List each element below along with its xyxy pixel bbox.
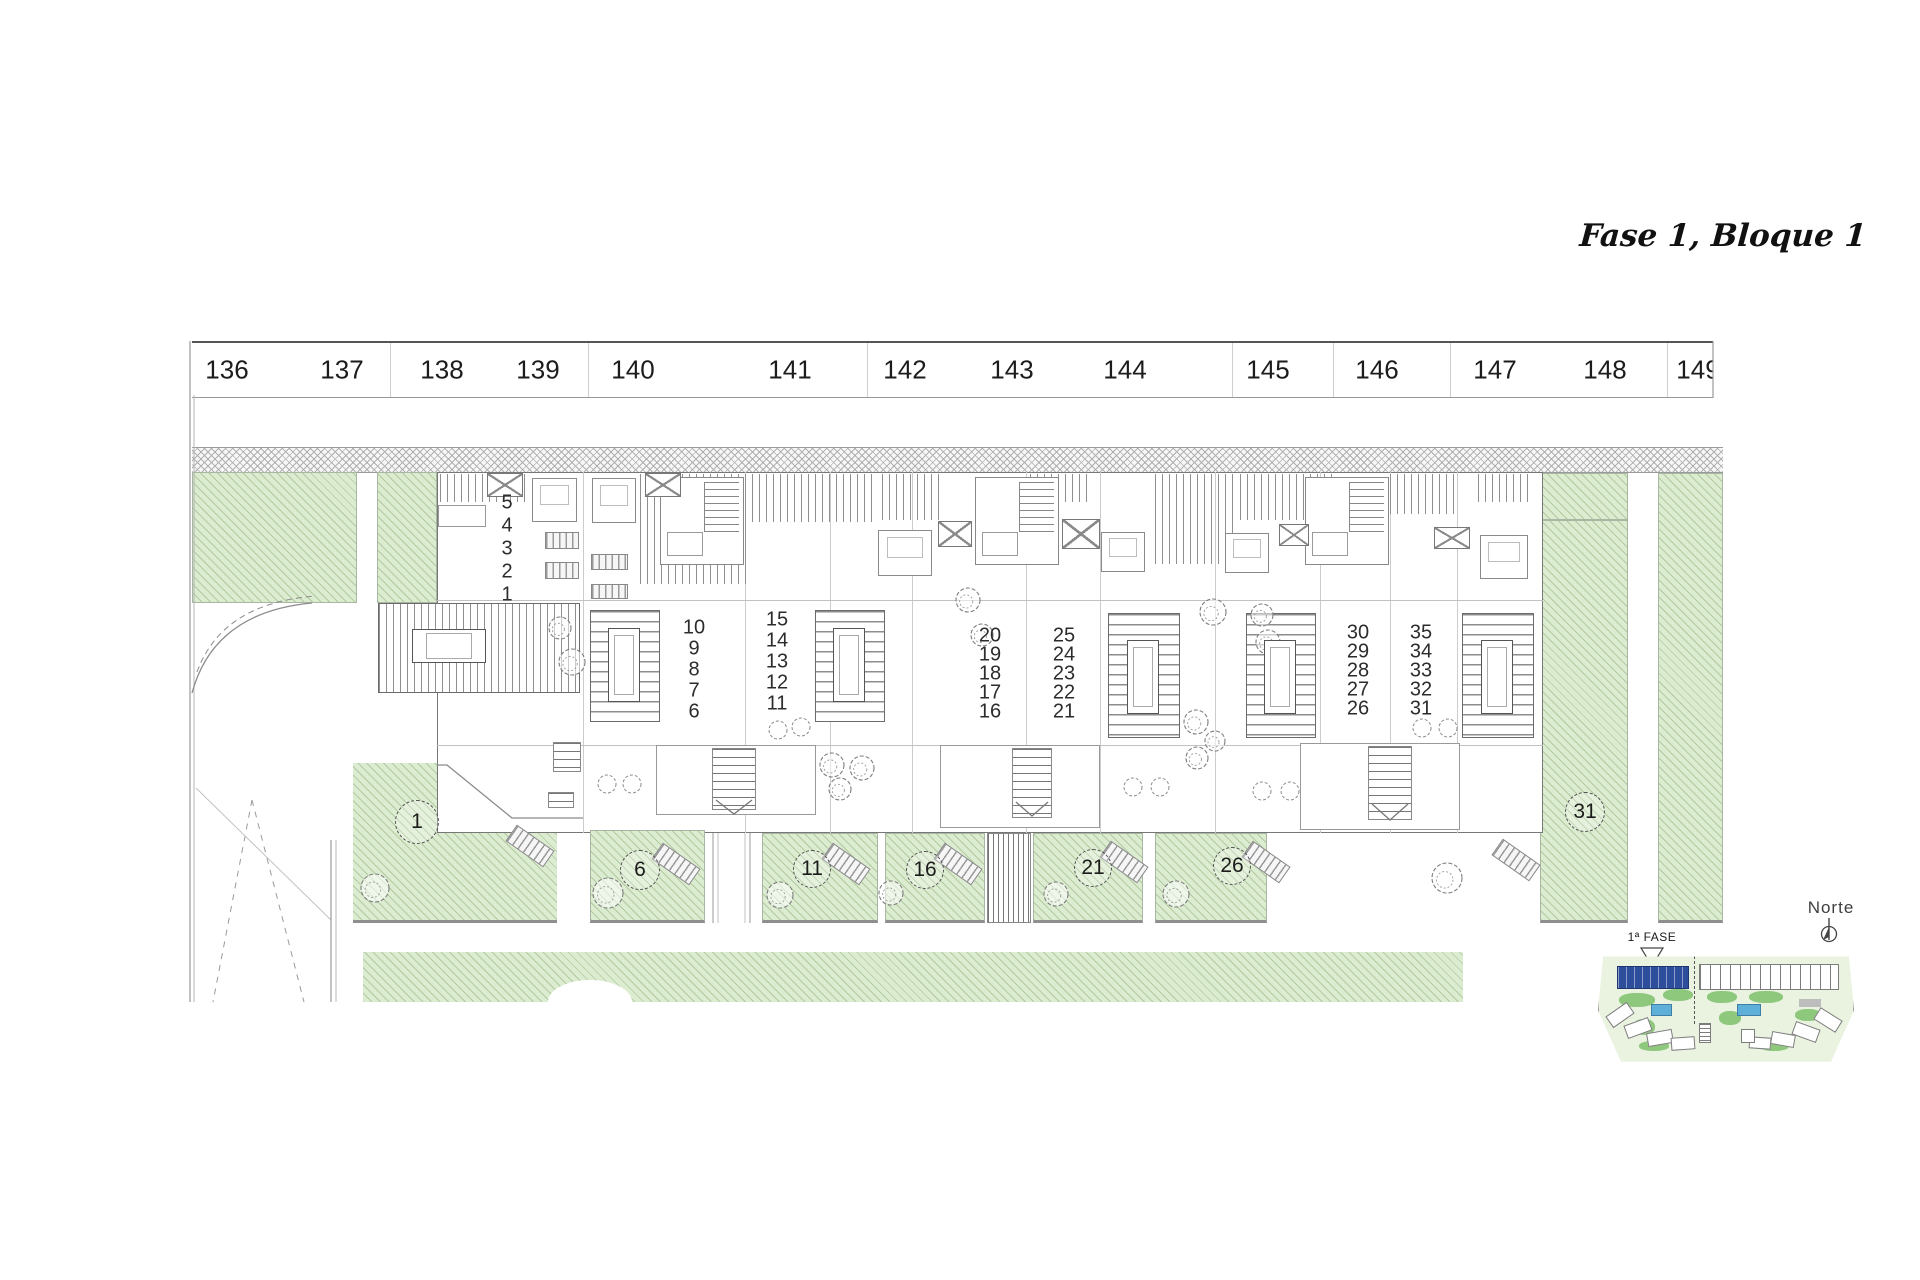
parcel-number: 143	[990, 355, 1033, 386]
ruler-divider	[1450, 343, 1451, 397]
minimap-pool	[1737, 1004, 1761, 1016]
stair-treads	[1349, 482, 1384, 532]
garden-stair	[553, 742, 581, 772]
parcel-number: 148	[1583, 355, 1626, 386]
plot-label: 16	[913, 858, 936, 882]
parcel-number: 144	[1103, 355, 1146, 386]
minimap-building	[1741, 1029, 1755, 1043]
unit-number: 4	[501, 515, 512, 538]
parcel-number: 149	[1676, 355, 1713, 386]
minimap-building	[1671, 1036, 1696, 1051]
unit-number: 16	[979, 701, 1001, 724]
parcel-number-ruler: 1361371381391401411421431441451461471481…	[192, 341, 1713, 398]
unit-number: 10	[683, 617, 705, 640]
unit-number: 31	[1410, 698, 1432, 721]
unit-number: 7	[688, 680, 699, 703]
plot-label: 1	[411, 810, 423, 834]
green-area-left-block	[192, 472, 357, 603]
ruler-divider	[867, 343, 868, 397]
pergola-stripes	[1478, 474, 1534, 502]
tree-icon	[1437, 872, 1454, 889]
pergola-stripes	[882, 474, 940, 520]
plot-label: 21	[1081, 856, 1104, 880]
parcel-number: 138	[420, 355, 463, 386]
parcel-number: 140	[611, 355, 654, 386]
parcel-number: 145	[1246, 355, 1289, 386]
garden-stair	[548, 792, 574, 808]
minimap-solarium	[1799, 999, 1821, 1007]
bed-room	[532, 478, 577, 522]
room-fixture	[667, 532, 703, 556]
walkway-steps	[987, 833, 1031, 923]
pergola-stripes	[752, 474, 876, 522]
ruler-divider	[1333, 343, 1334, 397]
pergola-stripes	[1390, 474, 1460, 514]
fase-label: 1ª FASE	[1612, 930, 1692, 944]
garden-stair	[1012, 748, 1052, 818]
floor-line	[437, 600, 1543, 601]
shaft-x-box	[1279, 524, 1309, 546]
plot-label-circle: 31	[1565, 792, 1605, 832]
minimap-green	[1749, 991, 1783, 1003]
bed-room	[878, 530, 932, 576]
parcel-number: 146	[1355, 355, 1398, 386]
unit-number: 15	[766, 609, 788, 632]
ruler-divider	[390, 343, 391, 397]
parcel-number: 137	[320, 355, 363, 386]
north-arrow-icon	[1822, 918, 1837, 942]
dining-table	[1481, 640, 1513, 714]
sun-lounger	[591, 554, 628, 570]
plot-label: 26	[1220, 854, 1243, 878]
minimap-green	[1663, 989, 1693, 1001]
stair-treads	[704, 482, 739, 532]
plot-label-circle: 6	[620, 850, 660, 890]
garden-plot-31	[1540, 520, 1628, 923]
plot-label-circle: 16	[906, 851, 944, 889]
unit-number: 2	[501, 561, 512, 584]
garden-stair	[1368, 746, 1412, 820]
unit-number: 21	[1053, 701, 1075, 724]
minimap-highlighted-block	[1617, 966, 1689, 989]
tree-icon	[1432, 863, 1462, 893]
hatched-boundary-band	[192, 447, 1723, 473]
sidewalk-bump	[548, 980, 632, 1024]
green-area-left-strip	[377, 472, 437, 603]
unit-number: 9	[688, 638, 699, 661]
north-label: Norte	[1786, 898, 1876, 918]
parcel-number: 147	[1473, 355, 1516, 386]
shaft-x-box	[938, 521, 972, 547]
dining-table	[412, 629, 486, 663]
unit-number: 11	[767, 693, 788, 716]
sun-lounger	[545, 532, 579, 549]
bed-room	[1225, 533, 1269, 573]
ruler-divider	[1667, 343, 1668, 397]
shaft-x-box	[1062, 519, 1100, 549]
minimap-top-row	[1699, 964, 1839, 990]
dining-table	[833, 628, 865, 702]
kitchen-counter	[438, 505, 486, 527]
sun-lounger	[1491, 839, 1540, 882]
unit-number: 13	[766, 651, 788, 674]
minimap-green	[1707, 991, 1737, 1003]
unit-number: 1	[501, 584, 512, 607]
room-fixture	[1312, 532, 1348, 556]
unit-number: 5	[501, 492, 512, 515]
plot-label: 31	[1573, 800, 1596, 824]
plot-label-circle: 1	[395, 800, 439, 844]
unit-number: 3	[501, 538, 512, 561]
unit-number: 12	[766, 672, 788, 695]
bed-room	[1101, 532, 1145, 572]
minimap-building	[1791, 1021, 1820, 1043]
dining-table	[1127, 640, 1159, 714]
plot-label-circle: 21	[1074, 849, 1112, 887]
stair-core	[975, 477, 1059, 565]
site-overview-minimap	[1598, 952, 1854, 1064]
unit-number: 6	[688, 701, 699, 724]
parcel-number: 136	[205, 355, 248, 386]
room-fixture	[982, 532, 1018, 556]
bed-room	[592, 478, 636, 523]
stair-core	[1305, 477, 1389, 565]
parcel-number: 142	[883, 355, 926, 386]
site-plan-sheet: Fase 1, Bloque 1 13613713813914014114214…	[0, 0, 1920, 1280]
bed-room	[1480, 535, 1528, 579]
plot-label-circle: 26	[1213, 847, 1251, 885]
dining-table	[608, 628, 640, 702]
minimap-stair	[1699, 1023, 1711, 1043]
plot-label: 11	[801, 857, 823, 881]
pergola-stripes	[1155, 474, 1235, 564]
wall-line	[583, 472, 584, 833]
stair-treads	[1019, 482, 1054, 532]
sun-lounger	[545, 562, 579, 579]
shaft-x-box	[645, 473, 681, 497]
unit-number: 14	[766, 630, 788, 653]
minimap-phase-divider	[1694, 956, 1695, 1024]
parcel-number: 141	[768, 355, 811, 386]
sun-lounger	[591, 584, 628, 599]
plot-label: 6	[634, 858, 646, 882]
wall-line	[912, 472, 913, 833]
ruler-divider	[1232, 343, 1233, 397]
page-title: Fase 1, Bloque 1	[1567, 218, 1880, 254]
green-area-right-strip	[1658, 473, 1723, 923]
ruler-divider	[588, 343, 589, 397]
parcel-number: 139	[516, 355, 559, 386]
wall-line	[1100, 472, 1101, 833]
shaft-x-box	[1434, 527, 1470, 549]
unit-number: 8	[688, 659, 699, 682]
minimap-pool	[1651, 1004, 1672, 1016]
plot-label-circle: 11	[793, 850, 831, 888]
dining-table	[1264, 640, 1296, 714]
green-sidewalk-strip	[363, 952, 1463, 1002]
unit-number: 26	[1347, 698, 1369, 721]
garden-stair	[712, 748, 756, 810]
